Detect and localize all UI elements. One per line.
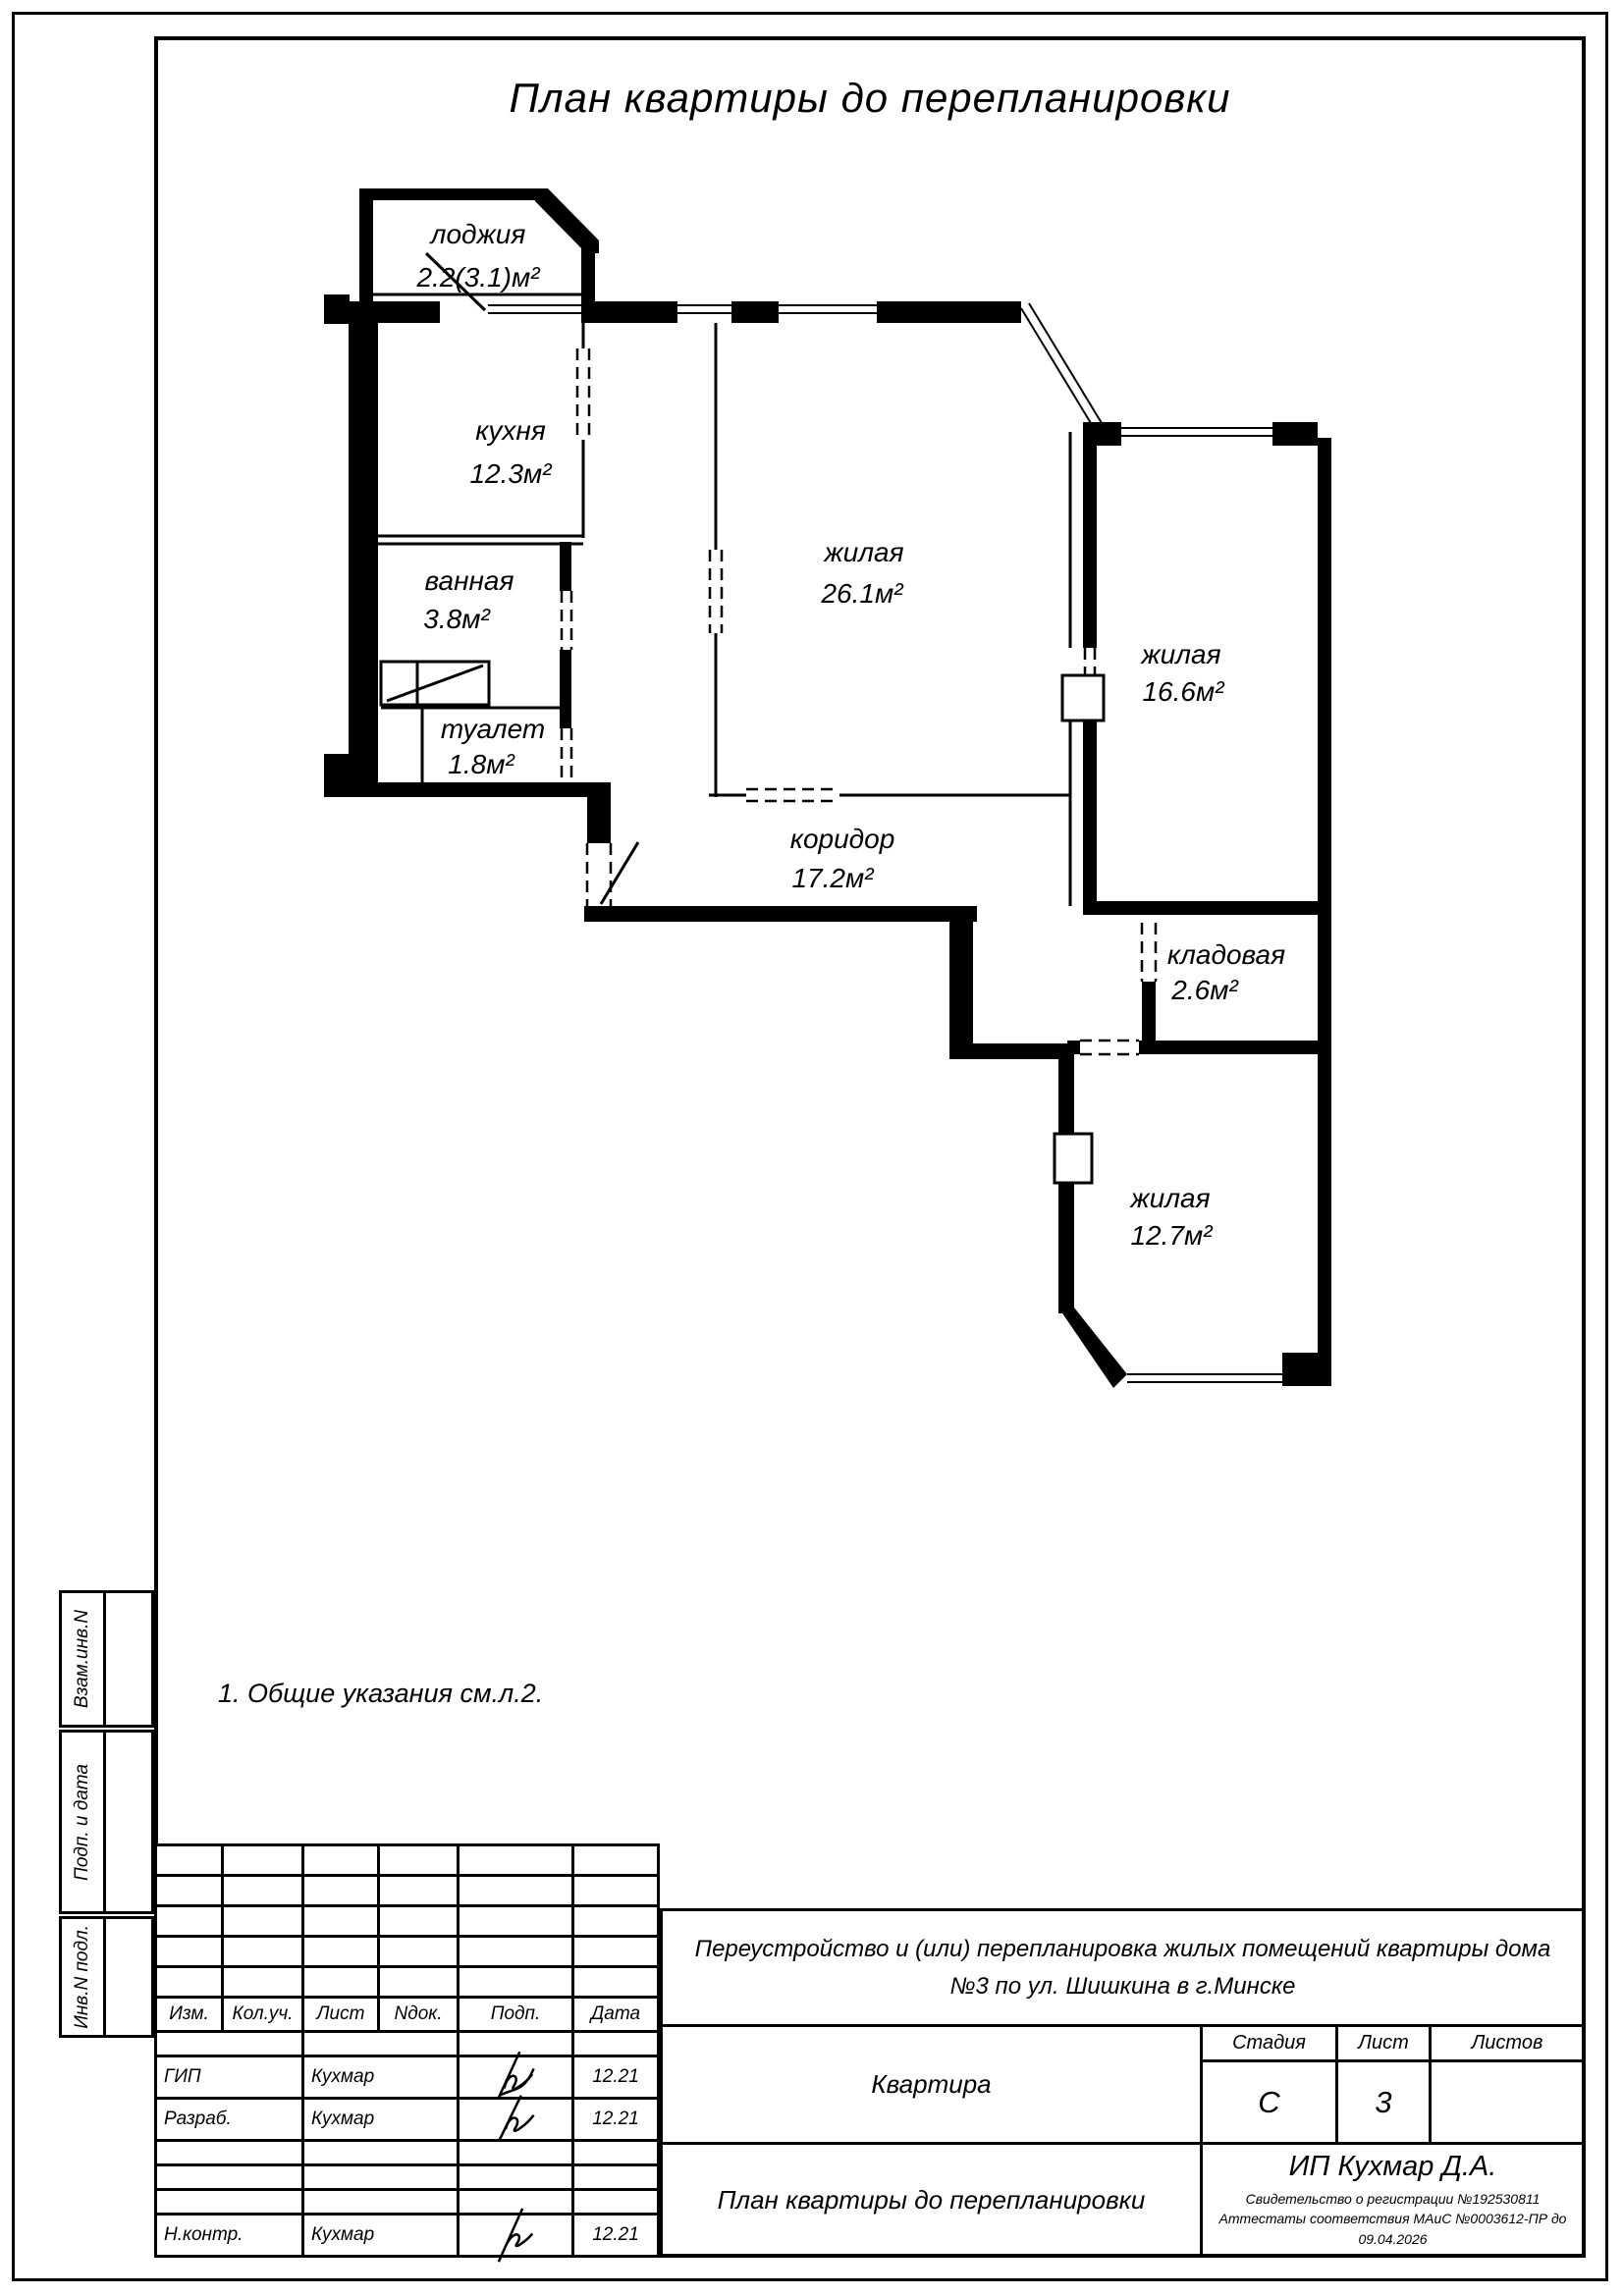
room-area-storage: 2.6м²	[1170, 975, 1239, 1005]
col-header-izm: Изм.	[157, 1999, 221, 2030]
signature-nkontr	[460, 2216, 571, 2255]
revision-empty-rows	[154, 1843, 660, 1999]
vent-shaft	[381, 662, 489, 705]
room-area-living3: 12.7м²	[1130, 1220, 1214, 1251]
stamp-label: Подп. и дата	[72, 1764, 93, 1881]
drawing-sheet: План квартиры до перепланировки	[0, 0, 1623, 2296]
stamp-empty-cell	[106, 1919, 151, 2035]
walls-thin	[373, 294, 1070, 906]
room-area-living2: 16.6м²	[1142, 676, 1225, 707]
sheet-title-cell: План квартиры до перепланировки	[660, 2142, 1203, 2258]
staff-role: Разраб.	[157, 2100, 301, 2139]
general-note: 1. Общие указания см.л.2.	[218, 1679, 543, 1709]
stage-header-cell: Стадия	[1200, 2024, 1338, 2062]
stamp-label: Инв.N подл.	[72, 1925, 93, 2029]
revision-header-row: Изм. Кол.уч. Лист Nдок. Подп. Дата	[154, 1996, 660, 2033]
col-header-koluch: Кол.уч.	[224, 1999, 301, 2030]
room-area-corridor: 17.2м²	[791, 863, 875, 893]
stamp-empty-cell	[106, 1593, 151, 1725]
sheet-label: Лист	[1358, 2032, 1409, 2055]
staff-name: Кухмар	[304, 2057, 457, 2097]
stage-label: Стадия	[1232, 2032, 1306, 2055]
stage-value: С	[1258, 2085, 1279, 2120]
sheet-title: План квартиры до перепланировки	[718, 2185, 1146, 2216]
sheets-header-cell: Листов	[1429, 2024, 1586, 2062]
stamp-label-cell: Подп. и дата	[62, 1733, 106, 1911]
room-label-bathroom: ванная	[425, 565, 514, 596]
company-cert-2: Аттестаты соответствия МАиС №0003612-ПР …	[1203, 2209, 1583, 2249]
room-label-storage: кладовая	[1167, 939, 1285, 970]
stamp-label: Взам.инв.N	[72, 1610, 93, 1708]
staff-name: Кухмар	[304, 2216, 457, 2255]
staff-date: 12.21	[574, 2057, 657, 2097]
room-label-kitchen: кухня	[475, 415, 546, 446]
stamp-inv-podl: Инв.N подл.	[59, 1916, 154, 2038]
stamp-podp-data: Подп. и дата	[59, 1730, 154, 1914]
room-area-toilet: 1.8м²	[448, 749, 515, 779]
stamp-label-cell: Взам.инв.N	[62, 1593, 106, 1725]
staff-date: 12.21	[574, 2100, 657, 2139]
project-line1: Переустройство и (или) перепланировка жи…	[695, 1931, 1551, 1967]
floor-plan-svg: лоджия 2.2(3.1)м² кухня 12.3м² ванная 3.…	[275, 128, 1394, 1482]
room-label-living2: жилая	[1139, 639, 1220, 669]
room-area-loggia: 2.2(3.1)м²	[415, 262, 541, 293]
col-header-podp: Подп.	[460, 1999, 571, 2030]
room-label-toilet: туалет	[441, 714, 545, 744]
room-label-corridor: коридор	[790, 824, 895, 854]
signature-gip	[460, 2057, 571, 2097]
sheet-value: 3	[1375, 2085, 1391, 2120]
staff-table: ГИП Кухмар 12.21 Разраб. Кухмар 12.21 Н.…	[154, 2030, 660, 2258]
staff-role: ГИП	[157, 2057, 301, 2097]
sheet-header-cell: Лист	[1335, 2024, 1432, 2062]
object-name: Квартира	[871, 2069, 991, 2100]
room-label-loggia: лоджия	[429, 219, 526, 249]
project-description-cell: Переустройство и (или) перепланировка жи…	[660, 1908, 1586, 2027]
project-line2: №3 по ул. Шишкина в г.Минске	[949, 1968, 1295, 2004]
sheets-value-cell	[1429, 2059, 1586, 2145]
stage-value-cell: С	[1200, 2059, 1338, 2145]
col-header-ndok: Nдок.	[380, 1999, 457, 2030]
room-area-living1: 26.1м²	[820, 578, 904, 609]
page-title: План квартиры до перепланировки	[154, 75, 1586, 122]
sheet-value-cell: 3	[1335, 2059, 1432, 2145]
col-header-data: Дата	[574, 1999, 657, 2030]
staff-name: Кухмар	[304, 2100, 457, 2139]
room-label-living3: жилая	[1128, 1183, 1210, 1213]
staff-date: 12.21	[574, 2216, 657, 2255]
staff-role: Н.контр.	[157, 2216, 301, 2255]
room-area-kitchen: 12.3м²	[469, 458, 553, 489]
company-name: ИП Кухмар Д.А.	[1289, 2151, 1497, 2183]
company-cert-1: Свидетельство о регистрации №192530811	[1246, 2189, 1541, 2209]
stamp-empty-cell	[106, 1733, 151, 1911]
sheets-label: Листов	[1472, 2032, 1543, 2055]
room-area-bathroom: 3.8м²	[423, 604, 491, 634]
room-label-living1: жилая	[822, 537, 903, 567]
col-header-list: Лист	[304, 1999, 377, 2030]
stamp-vzam-inv: Взам.инв.N	[59, 1590, 154, 1728]
signature-razrab	[460, 2100, 571, 2139]
object-name-cell: Квартира	[660, 2024, 1203, 2145]
company-cell: ИП Кухмар Д.А. Свидетельство о регистрац…	[1200, 2142, 1586, 2258]
stamp-label-cell: Инв.N подл.	[62, 1919, 106, 2035]
